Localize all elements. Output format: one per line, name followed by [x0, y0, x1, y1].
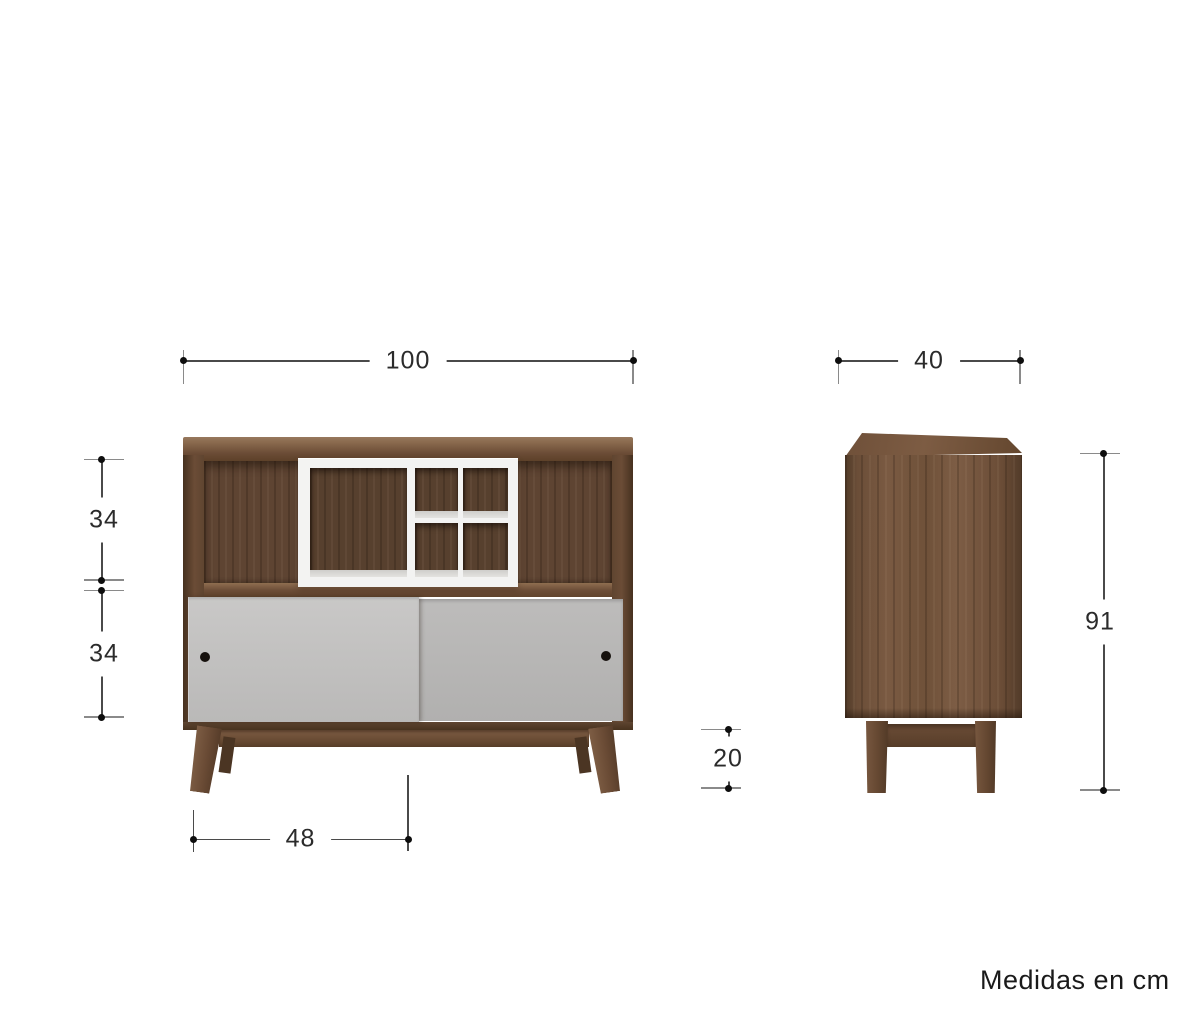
opening-floor — [310, 570, 407, 577]
sliding-door-left — [188, 597, 419, 722]
dimension-label-front-width: 100 — [370, 343, 447, 380]
side-leg-front — [866, 721, 888, 793]
dimension-side-depth: 40 — [838, 350, 1020, 384]
white-shelf-insert — [298, 458, 518, 587]
insert-cubby-bottom-left — [415, 523, 458, 577]
opening-floor — [463, 570, 508, 577]
insert-cubby-bottom-right — [463, 523, 508, 577]
dimension-endpoint — [190, 836, 197, 843]
opening-floor — [415, 511, 458, 518]
opening-floor — [415, 570, 458, 577]
dimension-endpoint — [1017, 357, 1024, 364]
opening-floor — [463, 511, 508, 518]
units-note: Medidas en cm — [980, 964, 1170, 996]
dimension-endpoint — [1100, 787, 1107, 794]
dimension-leg-height: 20 — [701, 729, 741, 788]
dimension-label-side-depth: 40 — [898, 343, 960, 380]
dimension-endpoint — [180, 357, 187, 364]
dimension-label-side-height: 91 — [1079, 599, 1121, 644]
side-leg-back — [975, 721, 996, 793]
dimension-endpoint — [98, 587, 105, 594]
extension-tick — [838, 350, 840, 384]
door-handle-right — [601, 651, 611, 661]
furniture-dimensions-diagram: 100 34 34 — [0, 0, 1200, 1028]
sliding-door-right — [417, 599, 623, 721]
insert-cubby-top-right — [463, 468, 508, 518]
dimension-endpoint — [725, 785, 732, 792]
dimension-endpoint — [98, 456, 105, 463]
dimension-endpoint — [835, 357, 842, 364]
side-apron — [886, 724, 977, 747]
front-leg-right — [588, 725, 623, 794]
extension-tick — [183, 350, 185, 384]
extension-tick — [1019, 350, 1021, 384]
insert-large-opening — [310, 468, 407, 577]
dimension-label-leg-height: 20 — [707, 736, 749, 781]
dimension-front-width: 100 — [183, 350, 633, 384]
dimension-label-lower-height: 34 — [83, 631, 125, 676]
dimension-endpoint — [98, 714, 105, 721]
side-bottom-edge — [845, 708, 1022, 718]
dimension-endpoint — [725, 726, 732, 733]
bottom-rail — [183, 722, 633, 730]
extension-tick — [701, 787, 741, 789]
door-handle-left — [200, 652, 210, 662]
dimension-endpoint — [630, 357, 637, 364]
dimension-front-upper-height: 34 — [84, 459, 124, 580]
dimension-front-lower-height: 34 — [84, 590, 124, 717]
dimension-label-upper-height: 34 — [83, 497, 125, 542]
dimension-leg-span: 48 — [193, 775, 408, 852]
dimension-side-height: 91 — [1080, 453, 1120, 790]
side-panel — [845, 455, 1022, 718]
dimension-endpoint — [98, 577, 105, 584]
dimension-endpoint — [405, 836, 412, 843]
insert-cubby-top-left — [415, 468, 458, 518]
front-apron — [219, 730, 589, 747]
extension-tick — [701, 729, 741, 731]
extension-tick — [632, 350, 634, 384]
extension-tick — [193, 810, 195, 852]
dimension-label-leg-span: 48 — [270, 821, 332, 858]
dimension-endpoint — [1100, 450, 1107, 457]
